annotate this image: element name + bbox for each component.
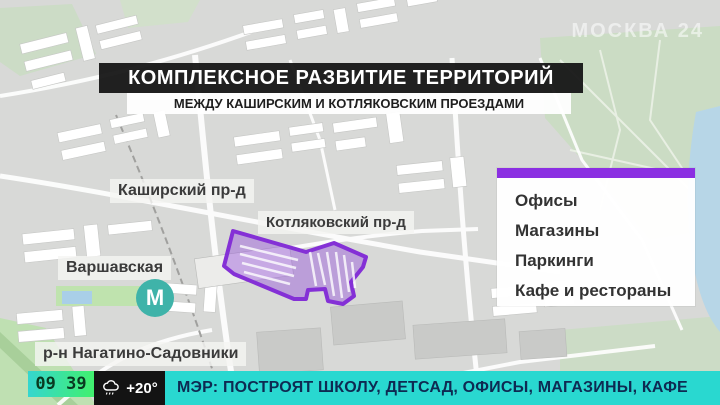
label-kotlyakovsky-proezd: Котляковский пр-д — [258, 211, 414, 234]
clock-display: 09 39 — [28, 371, 94, 397]
list-item: Магазины — [515, 216, 689, 246]
rain-cloud-icon — [101, 380, 121, 397]
banner-subtitle: МЕЖДУ КАШИРСКИМ И КОТЛЯКОВСКИМ ПРОЕЗДАМИ — [127, 93, 571, 114]
label-varshavskaya-station: Варшавская — [58, 256, 171, 280]
channel-watermark: МОСКВА 24 — [571, 20, 704, 43]
development-info-panel: Офисы Магазины Паркинги Кафе и рестораны — [497, 168, 695, 306]
metro-icon: М — [136, 279, 174, 317]
label-district-nagatino-sadovniki: р-н Нагатино-Садовники — [35, 342, 246, 366]
list-item: Паркинги — [515, 246, 689, 276]
news-ticker: МЭР: ПОСТРОЯТ ШКОЛУ, ДЕТСАД, ОФИСЫ, МАГА… — [165, 371, 720, 405]
panel-accent-bar — [497, 168, 695, 178]
list-item: Кафе и рестораны — [515, 276, 689, 306]
metro-letter: М — [146, 285, 164, 311]
weather-chip: +20° — [94, 371, 165, 405]
list-item: Офисы — [515, 186, 689, 216]
development-features-list: Офисы Магазины Паркинги Кафе и рестораны — [497, 178, 695, 306]
temperature-value: +20° — [126, 380, 157, 397]
label-kashirsky-proezd: Каширский пр-д — [110, 179, 254, 203]
banner-title: КОМПЛЕКСНОЕ РАЗВИТИЕ ТЕРРИТОРИЙ — [99, 63, 583, 93]
headline-text: МЭР: ПОСТРОЯТ ШКОЛУ, ДЕТСАД, ОФИСЫ, МАГА… — [177, 379, 688, 397]
broadcast-frame: МОСКВА 24 КОМПЛЕКСНОЕ РАЗВИТИЕ ТЕРРИТОРИ… — [0, 0, 720, 405]
